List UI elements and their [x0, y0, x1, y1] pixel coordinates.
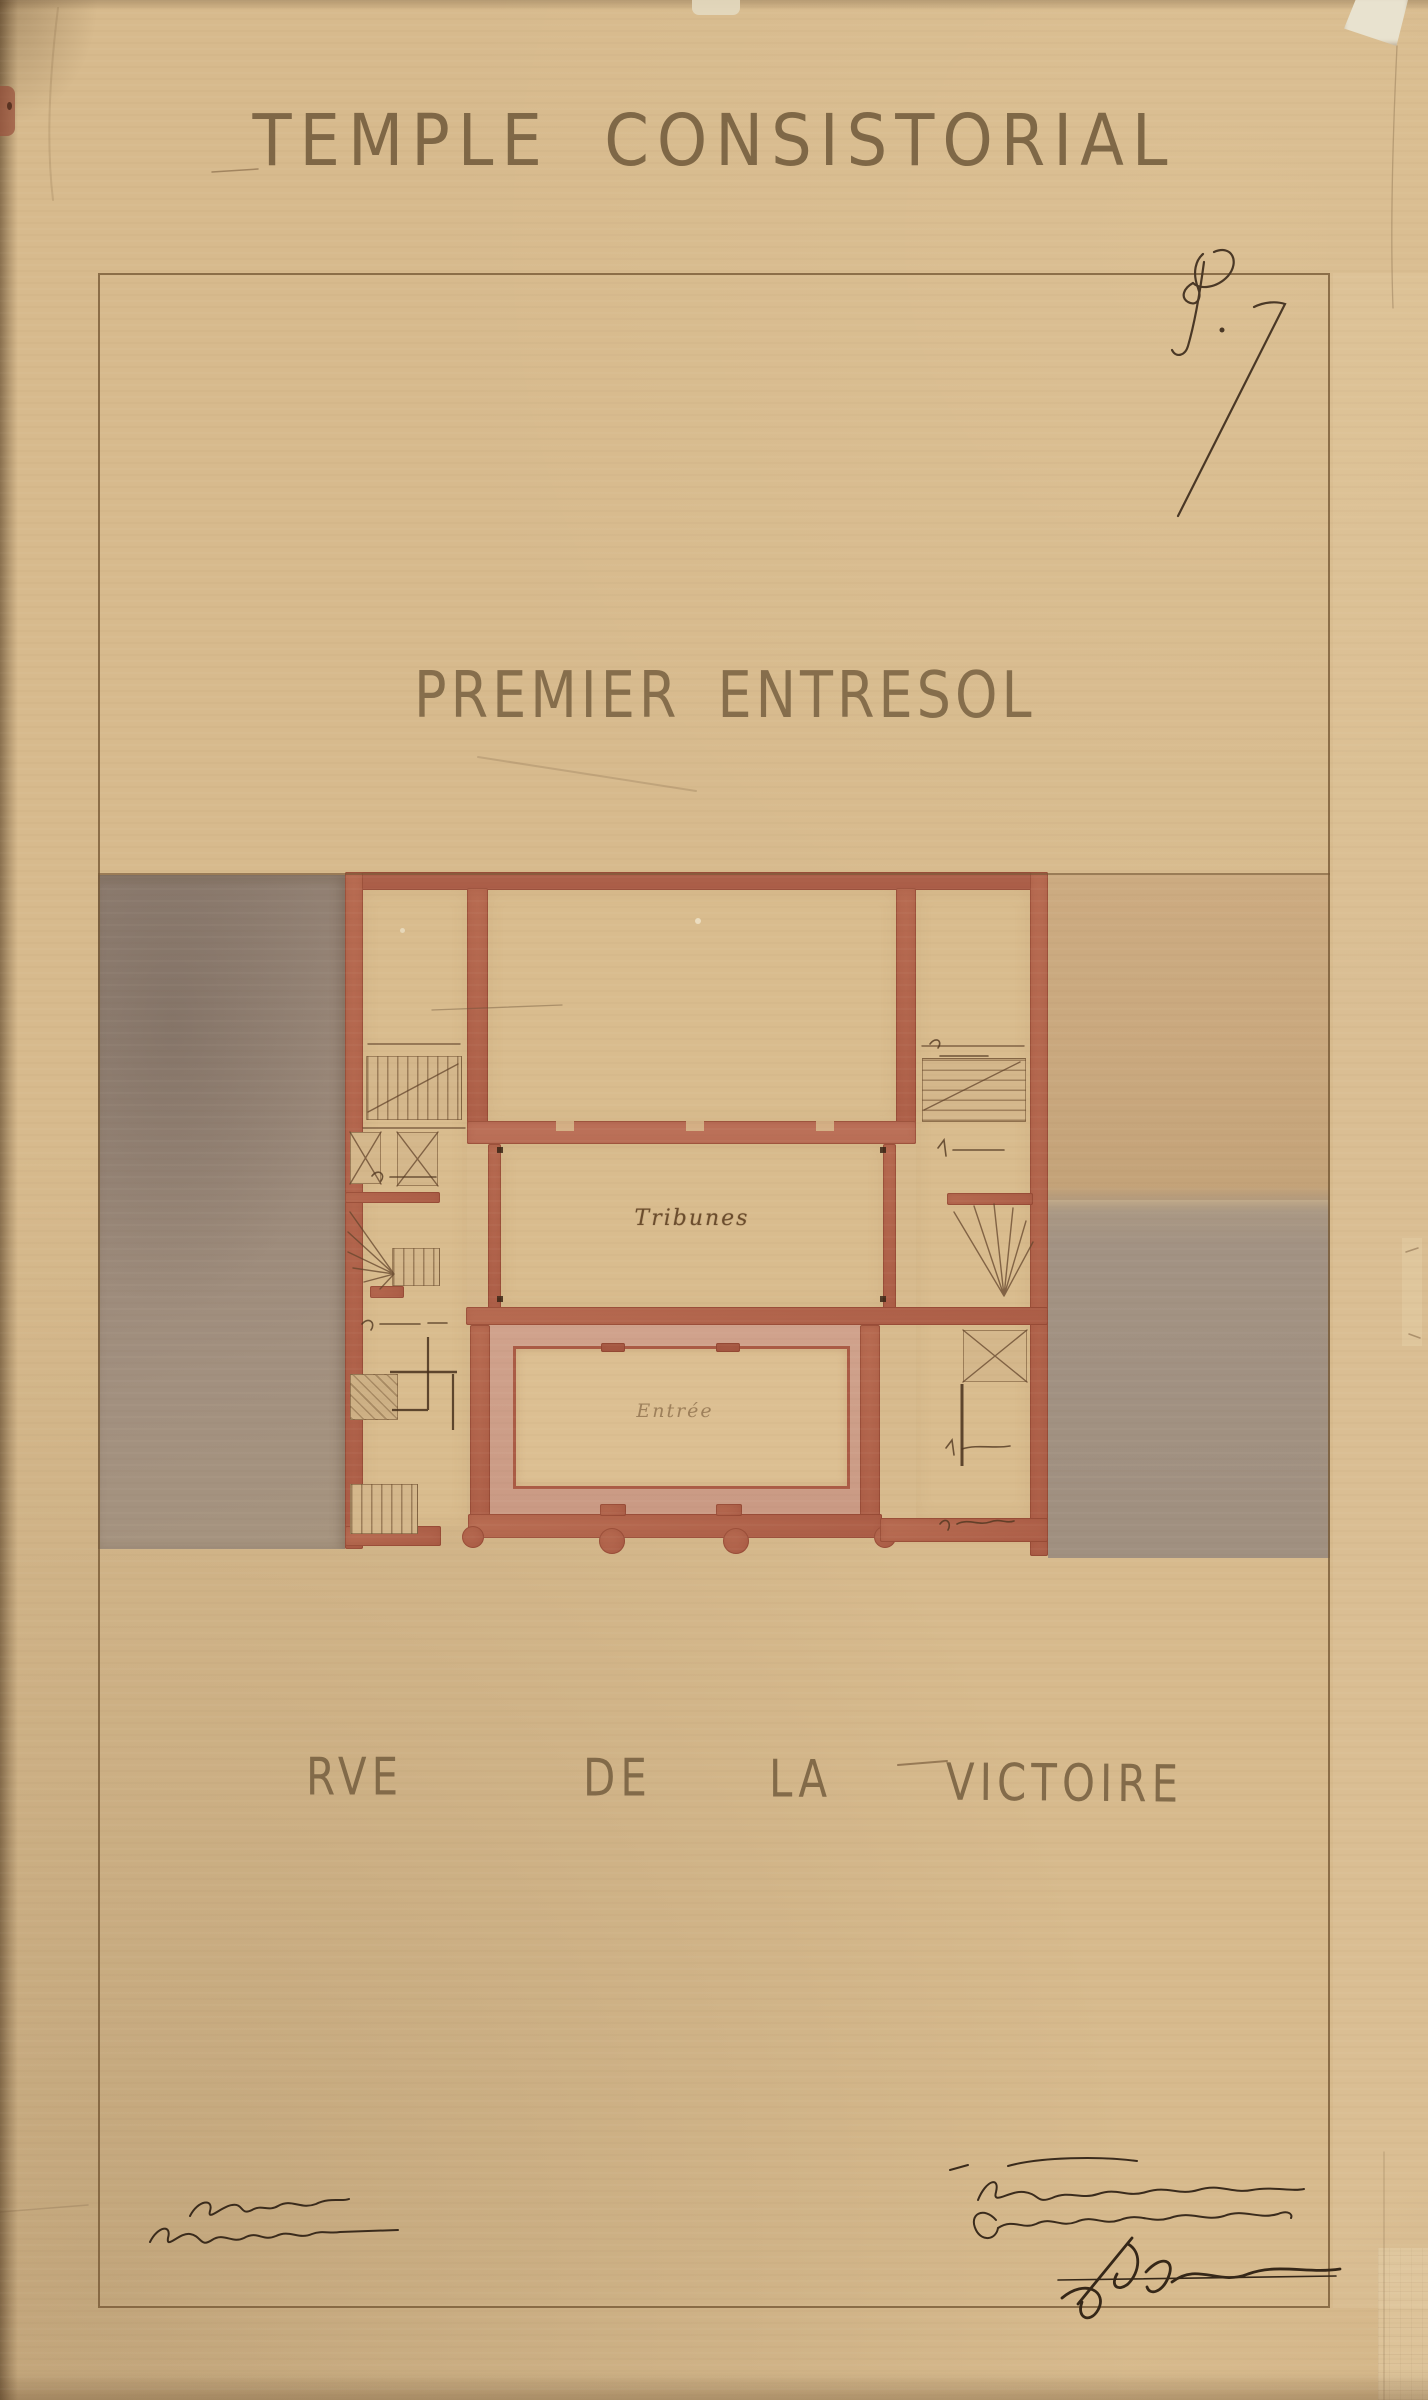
street-word-rue: RVE	[306, 1747, 403, 1807]
street-word-la: LA	[769, 1749, 832, 1809]
tape-fragment-top-center	[692, 0, 740, 15]
edge-smudge-left	[0, 86, 15, 136]
floor-label: PREMIER ENTRESOL	[414, 658, 1014, 732]
street-word-de: DE	[583, 1748, 652, 1808]
paper-speck	[400, 928, 405, 933]
room-label-tribunes: Tribunes	[612, 1206, 772, 1231]
drawing-sheet: TEMPLE CONSISTORIAL PREMIER ENTRESOL RVE…	[0, 0, 1428, 2400]
street-word-victoire: VICTOIRE	[946, 1752, 1184, 1814]
right-of-frame-lightening	[1333, 273, 1428, 2308]
edge-speck-left	[7, 102, 12, 110]
paper-speck	[695, 918, 701, 924]
room-label-entree: Entrée	[600, 1400, 750, 1422]
sheet-title: TEMPLE CONSISTORIAL	[244, 100, 1184, 183]
edge-shadow-bottom	[0, 2372, 1428, 2400]
corner-shadow-top-left	[0, 0, 140, 180]
tape-fragment-top-right	[1344, 0, 1408, 46]
drawing-frame	[98, 273, 1330, 2308]
edge-shadow-left	[0, 0, 18, 2400]
